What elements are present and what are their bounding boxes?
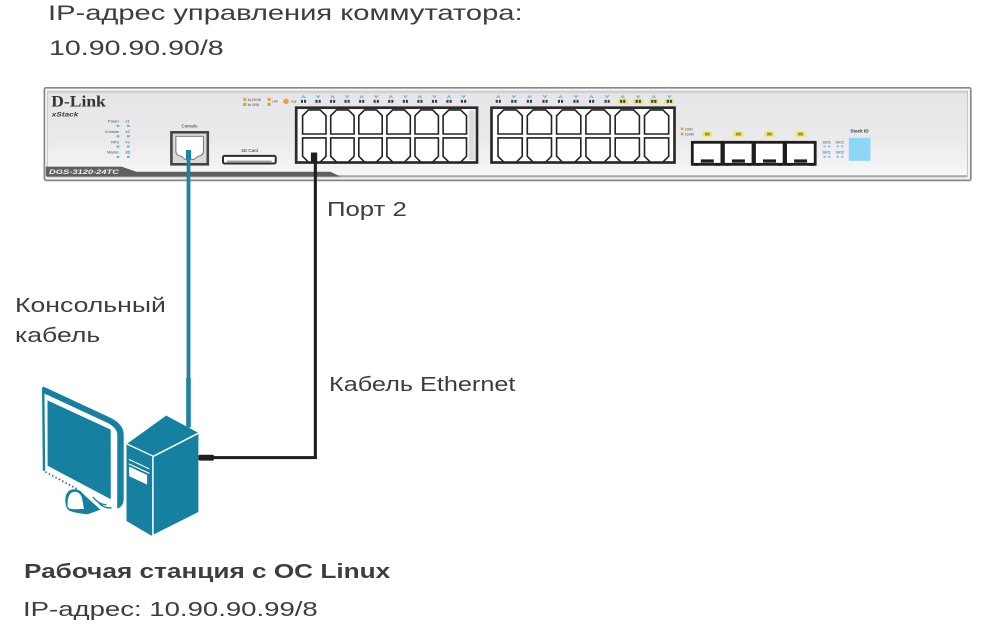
svg-text:SIO1: SIO1 xyxy=(823,140,831,144)
svg-text:x1: x1 xyxy=(126,119,130,124)
svg-text:100M: 100M xyxy=(685,128,693,132)
svg-text:Master: Master xyxy=(107,150,120,155)
svg-text:Console: Console xyxy=(105,129,119,134)
svg-text:D-Link: D-Link xyxy=(51,94,106,111)
svg-text:Stack ID: Stack ID xyxy=(850,129,869,134)
svg-text:x2: x2 xyxy=(126,129,130,134)
svg-text:SIO2: SIO2 xyxy=(836,151,844,155)
svg-text:Fx: Fx xyxy=(126,139,130,144)
svg-text:Console: Console xyxy=(181,123,198,128)
svg-text:PoE: PoE xyxy=(292,100,297,104)
svg-text:1000M: 1000M xyxy=(685,133,694,137)
svg-text:Link: Link xyxy=(272,100,278,104)
svg-text:Act 10/100M: Act 10/100M xyxy=(248,98,262,102)
svg-text:xStack: xStack xyxy=(51,111,79,118)
svg-text:SIO1: SIO1 xyxy=(823,151,831,155)
svg-text:DGS-3120-24TC: DGS-3120-24TC xyxy=(49,169,120,176)
svg-text:RPS: RPS xyxy=(111,139,119,144)
svg-text:Act 1000M: Act 1000M xyxy=(248,103,260,107)
svg-text:SIO2: SIO2 xyxy=(836,140,844,144)
svg-text:SD Card: SD Card xyxy=(241,148,258,153)
svg-text:Power: Power xyxy=(108,119,120,124)
svg-text:8D: 8D xyxy=(126,150,131,155)
